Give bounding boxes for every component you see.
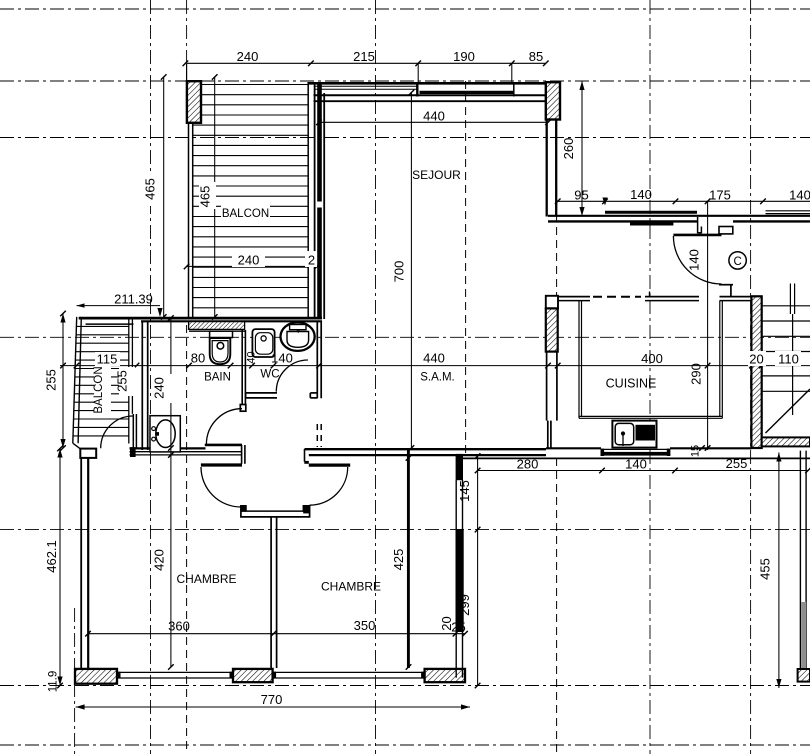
- svg-text:140: 140: [271, 351, 293, 366]
- svg-text:SEJOUR: SEJOUR: [412, 168, 461, 182]
- svg-text:190: 190: [453, 49, 475, 64]
- svg-text:110: 110: [778, 352, 799, 367]
- svg-text:462.1: 462.1: [44, 540, 59, 573]
- svg-text:80: 80: [191, 351, 205, 366]
- svg-text:260: 260: [561, 138, 576, 160]
- svg-text:140: 140: [625, 457, 647, 472]
- svg-text:CHAMBRE: CHAMBRE: [321, 580, 381, 594]
- svg-text:215: 215: [353, 49, 375, 64]
- svg-text:115: 115: [97, 352, 118, 367]
- svg-text:11.9: 11.9: [48, 671, 60, 693]
- svg-text:BALCON: BALCON: [93, 366, 105, 413]
- svg-text:211.39: 211.39: [114, 292, 153, 307]
- svg-text:420: 420: [151, 549, 166, 571]
- svg-text:95: 95: [574, 188, 588, 203]
- svg-text:CUISINE: CUISINE: [606, 377, 657, 391]
- svg-text:15: 15: [689, 445, 701, 457]
- svg-text:140: 140: [789, 188, 810, 203]
- svg-text:770: 770: [261, 692, 283, 707]
- svg-text:255: 255: [115, 370, 130, 392]
- svg-text:40: 40: [245, 351, 257, 363]
- svg-text:175: 175: [709, 188, 731, 203]
- svg-text:255: 255: [726, 456, 748, 471]
- svg-text:425: 425: [391, 549, 406, 571]
- svg-text:240: 240: [237, 49, 259, 64]
- svg-text:S.A.M.: S.A.M.: [420, 372, 455, 384]
- svg-text:350: 350: [354, 618, 376, 633]
- svg-text:290: 290: [689, 363, 704, 385]
- svg-text:240: 240: [238, 252, 260, 267]
- svg-text:280: 280: [517, 457, 539, 472]
- svg-text:440: 440: [423, 109, 445, 124]
- svg-text:145: 145: [457, 480, 472, 502]
- svg-text:140: 140: [630, 187, 652, 202]
- svg-text:465: 465: [198, 186, 213, 208]
- svg-text:240: 240: [152, 377, 167, 399]
- svg-text:20: 20: [439, 616, 454, 630]
- svg-text:20: 20: [749, 352, 763, 367]
- svg-text:400: 400: [641, 351, 663, 366]
- svg-text:2: 2: [308, 252, 315, 267]
- svg-text:465: 465: [143, 178, 158, 200]
- svg-text:299: 299: [457, 594, 472, 616]
- svg-text:700: 700: [392, 261, 407, 283]
- svg-text:440: 440: [423, 351, 445, 366]
- svg-text:140: 140: [687, 249, 702, 271]
- svg-text:BALCON: BALCON: [222, 208, 269, 220]
- svg-text:85: 85: [529, 49, 543, 64]
- svg-text:CHAMBRE: CHAMBRE: [176, 572, 236, 586]
- svg-text:BAIN: BAIN: [204, 372, 231, 384]
- svg-text:455: 455: [758, 558, 773, 580]
- svg-text:255: 255: [44, 369, 59, 391]
- svg-text:360: 360: [168, 619, 190, 634]
- svg-text:WC: WC: [260, 369, 279, 381]
- svg-text:C: C: [733, 256, 741, 268]
